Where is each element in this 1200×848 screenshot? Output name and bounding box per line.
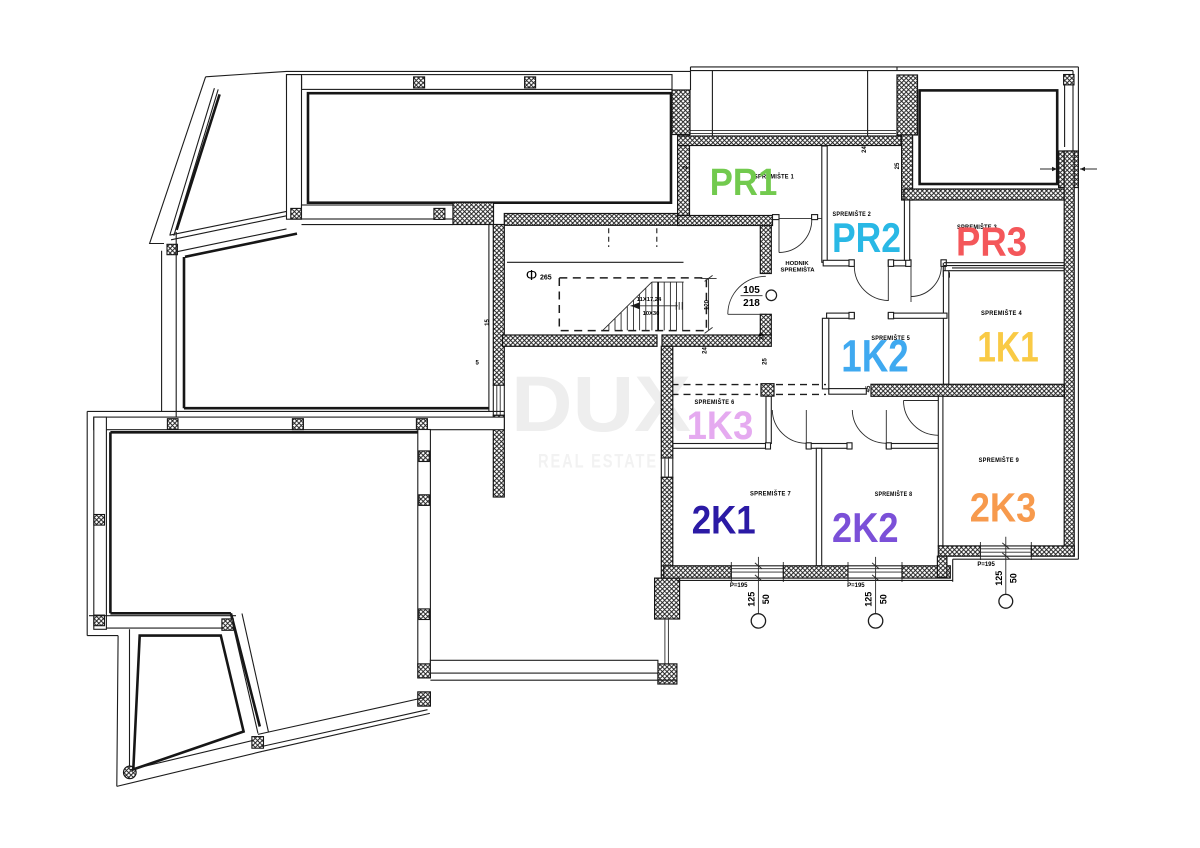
- svg-text:SPREMIŠTE 4: SPREMIŠTE 4: [981, 308, 1022, 317]
- svg-text:Φ: Φ: [526, 268, 538, 284]
- svg-text:2K1: 2K1: [692, 498, 756, 542]
- svg-text:25: 25: [760, 333, 766, 340]
- svg-text:125: 125: [746, 592, 756, 607]
- svg-text:SPREMIŠTE 9: SPREMIŠTE 9: [979, 455, 1020, 464]
- svg-text:24: 24: [703, 347, 709, 354]
- svg-text:125: 125: [994, 571, 1004, 586]
- svg-text:1K1: 1K1: [977, 323, 1039, 371]
- svg-text:REAL ESTATE: REAL ESTATE: [538, 451, 658, 473]
- svg-text:1K2: 1K2: [841, 331, 909, 382]
- svg-text:SPREMIŠTE 7: SPREMIŠTE 7: [750, 489, 791, 498]
- svg-text:218: 218: [743, 298, 760, 309]
- svg-text:50: 50: [1009, 573, 1019, 583]
- svg-text:SPREMIŠTE 8: SPREMIŠTE 8: [875, 489, 913, 498]
- svg-text:15: 15: [485, 319, 491, 326]
- svg-text:P=195: P=195: [847, 583, 865, 589]
- svg-text:11X17,24: 11X17,24: [637, 297, 662, 303]
- svg-text:125: 125: [864, 592, 874, 607]
- svg-text:24: 24: [862, 146, 868, 153]
- svg-text:25: 25: [895, 162, 901, 169]
- svg-text:10X30: 10X30: [643, 311, 660, 317]
- svg-text:105: 105: [743, 285, 760, 296]
- svg-text:P=195: P=195: [730, 583, 748, 589]
- svg-text:HODNIK: HODNIK: [785, 261, 809, 267]
- svg-text:2K3: 2K3: [970, 484, 1037, 530]
- svg-text:1K3: 1K3: [687, 404, 754, 448]
- svg-text:2K2: 2K2: [832, 504, 899, 551]
- svg-text:PR3: PR3: [956, 218, 1027, 264]
- svg-text:PR1: PR1: [710, 162, 778, 204]
- svg-text:120: 120: [705, 299, 711, 310]
- svg-text:50: 50: [761, 594, 771, 604]
- svg-text:SPREMIŠTA: SPREMIŠTA: [781, 266, 816, 274]
- svg-text:P=195: P=195: [977, 562, 995, 568]
- svg-text:25: 25: [762, 358, 768, 365]
- svg-text:50: 50: [878, 594, 888, 604]
- svg-text:PR2: PR2: [832, 214, 901, 261]
- svg-text:265: 265: [540, 275, 552, 282]
